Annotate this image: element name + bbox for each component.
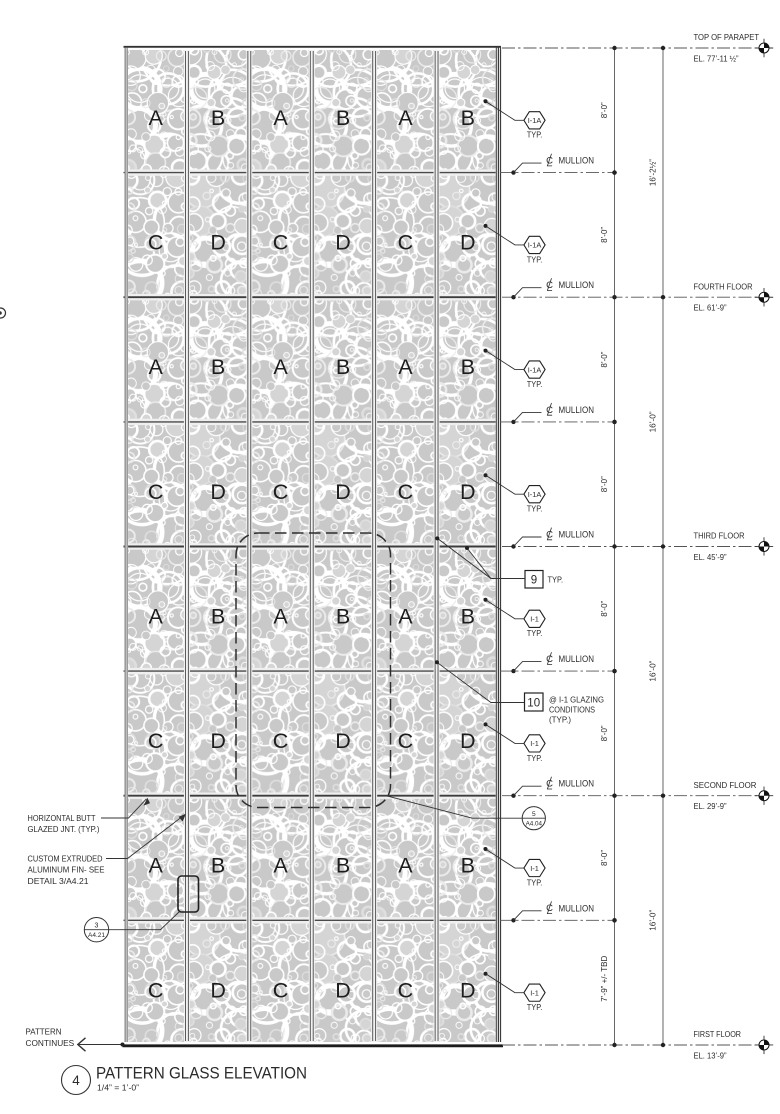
svg-text:16’-0”: 16’-0” <box>648 660 658 681</box>
svg-text:PATTERN: PATTERN <box>26 1027 62 1037</box>
svg-text:B: B <box>211 355 225 379</box>
svg-text:A4.04: A4.04 <box>526 821 543 828</box>
svg-text:C: C <box>398 231 414 255</box>
svg-text:C: C <box>398 978 414 1002</box>
svg-text:TYP.: TYP. <box>527 878 543 887</box>
svg-text:D: D <box>210 978 226 1002</box>
svg-text:EL. 61’-9”: EL. 61’-9” <box>694 303 727 313</box>
svg-text:16’-2½”: 16’-2½” <box>648 159 658 186</box>
svg-text:CONDITIONS: CONDITIONS <box>549 704 595 714</box>
svg-text:D: D <box>460 231 476 255</box>
svg-text:C: C <box>546 156 553 167</box>
svg-text:9: 9 <box>531 575 537 587</box>
svg-text:A: A <box>398 854 413 878</box>
svg-text:C: C <box>148 231 164 255</box>
svg-text:A: A <box>149 605 164 629</box>
svg-text:TYP.: TYP. <box>527 754 543 763</box>
svg-text:B: B <box>211 605 225 629</box>
svg-text:EL. 45’-9”: EL. 45’-9” <box>694 552 727 562</box>
svg-text:D: D <box>460 978 476 1002</box>
svg-text:FOURTH FLOOR: FOURTH FLOOR <box>694 281 753 291</box>
svg-text:D: D <box>335 480 351 504</box>
svg-text:C: C <box>546 779 553 790</box>
svg-text:D: D <box>210 480 226 504</box>
svg-text:C: C <box>148 480 164 504</box>
svg-text:I-1A: I-1A <box>528 365 542 374</box>
svg-text:I-1: I-1 <box>530 989 539 998</box>
svg-text:A: A <box>273 854 288 878</box>
svg-text:TYP.: TYP. <box>527 505 543 514</box>
svg-text:(TYP.): (TYP.) <box>549 714 571 724</box>
svg-text:EL. 77’-11 ½”: EL. 77’-11 ½” <box>694 53 739 63</box>
svg-text:I-1A: I-1A <box>528 241 542 250</box>
svg-text:C: C <box>546 405 553 416</box>
svg-text:8’-0”: 8’-0” <box>599 227 609 243</box>
svg-text:C: C <box>398 480 414 504</box>
svg-text:D: D <box>210 729 226 753</box>
svg-text:CUSTOM EXTRUDED: CUSTOM EXTRUDED <box>28 853 103 863</box>
svg-text:MULLION: MULLION <box>559 530 595 540</box>
svg-text:10: 10 <box>527 698 540 710</box>
svg-text:B: B <box>336 854 350 878</box>
svg-text:A: A <box>398 605 413 629</box>
svg-text:C: C <box>273 729 289 753</box>
svg-text:5: 5 <box>532 811 536 818</box>
svg-text:D: D <box>460 729 476 753</box>
svg-text:A4.21: A4.21 <box>88 932 105 939</box>
svg-text:B: B <box>461 355 475 379</box>
svg-text:I-1: I-1 <box>530 864 539 873</box>
svg-text:I-1: I-1 <box>530 739 539 748</box>
svg-text:TYP.: TYP. <box>548 576 564 585</box>
svg-text:DETAIL 3/A4.21: DETAIL 3/A4.21 <box>28 876 89 886</box>
svg-text:@ I-1 GLAZING: @ I-1 GLAZING <box>549 694 604 704</box>
svg-text:MULLION: MULLION <box>559 280 595 290</box>
svg-text:I-1: I-1 <box>530 615 539 624</box>
svg-text:I-1A: I-1A <box>528 490 542 499</box>
svg-text:D: D <box>335 231 351 255</box>
svg-text:8’-0”: 8’-0” <box>599 476 609 492</box>
svg-text:8’-0”: 8’-0” <box>599 601 609 617</box>
svg-text:GLAZED JNT. (TYP.): GLAZED JNT. (TYP.) <box>28 824 100 834</box>
svg-text:8’-0”: 8’-0” <box>599 850 609 866</box>
svg-text:C: C <box>148 729 164 753</box>
svg-text:TOP OF PARAPET: TOP OF PARAPET <box>694 32 760 42</box>
svg-text:MULLION: MULLION <box>559 903 595 913</box>
svg-text:A: A <box>149 854 164 878</box>
svg-text:TYP.: TYP. <box>527 131 543 140</box>
svg-text:8’-0”: 8’-0” <box>599 725 609 741</box>
svg-text:C: C <box>148 978 164 1002</box>
svg-text:ALUMINUM FIN- SEE: ALUMINUM FIN- SEE <box>28 865 105 875</box>
svg-text:A: A <box>149 355 164 379</box>
svg-text:D: D <box>335 729 351 753</box>
svg-text:TYP.: TYP. <box>527 1003 543 1012</box>
svg-text:4: 4 <box>72 1073 80 1088</box>
svg-text:B: B <box>211 106 225 130</box>
svg-text:EL. 13’-9”: EL. 13’-9” <box>694 1050 727 1060</box>
svg-text:C: C <box>273 480 289 504</box>
svg-text:C: C <box>273 231 289 255</box>
svg-text:D: D <box>210 231 226 255</box>
svg-text:A: A <box>398 355 413 379</box>
svg-text:EL. 29’-9”: EL. 29’-9” <box>694 801 727 811</box>
svg-text:C: C <box>546 654 553 665</box>
svg-text:MULLION: MULLION <box>559 654 595 664</box>
svg-text:PATTERN GLASS ELEVATION: PATTERN GLASS ELEVATION <box>96 1064 307 1083</box>
svg-text:16’-0”: 16’-0” <box>648 910 658 931</box>
svg-text:MULLION: MULLION <box>559 779 595 789</box>
svg-text:D: D <box>335 978 351 1002</box>
svg-text:B: B <box>336 355 350 379</box>
svg-text:A: A <box>273 605 288 629</box>
svg-text:A: A <box>273 355 288 379</box>
svg-text:B: B <box>461 605 475 629</box>
svg-text:A: A <box>398 106 413 130</box>
svg-text:B: B <box>211 854 225 878</box>
svg-text:7’-9” +/- TBD: 7’-9” +/- TBD <box>599 956 609 1002</box>
svg-text:3: 3 <box>95 923 99 930</box>
svg-text:HORIZONTAL BUTT: HORIZONTAL BUTT <box>28 813 96 823</box>
svg-text:16’-0”: 16’-0” <box>648 411 658 432</box>
svg-text:1/4” = 1’-0”: 1/4” = 1’-0” <box>97 1083 139 1092</box>
svg-text:MULLION: MULLION <box>559 405 595 415</box>
svg-text:CONTINUES: CONTINUES <box>26 1038 75 1048</box>
svg-text:A: A <box>273 106 288 130</box>
svg-text:B: B <box>461 106 475 130</box>
svg-text:MULLION: MULLION <box>559 156 595 166</box>
svg-text:B: B <box>461 854 475 878</box>
svg-text:THIRD FLOOR: THIRD FLOOR <box>694 531 745 541</box>
svg-text:C: C <box>546 903 553 914</box>
svg-text:C: C <box>273 978 289 1002</box>
svg-text:C: C <box>398 729 414 753</box>
svg-text:A: A <box>149 106 164 130</box>
svg-text:TYP.: TYP. <box>527 629 543 638</box>
svg-text:I-1A: I-1A <box>528 116 542 125</box>
svg-text:D: D <box>460 480 476 504</box>
svg-text:SECOND FLOOR: SECOND FLOOR <box>694 780 757 790</box>
svg-text:TYP.: TYP. <box>527 255 543 264</box>
svg-text:FIRST FLOOR: FIRST FLOOR <box>694 1029 742 1039</box>
svg-text:C: C <box>546 529 553 540</box>
svg-text:B: B <box>336 106 350 130</box>
svg-text:8’-0”: 8’-0” <box>599 351 609 367</box>
svg-text:B: B <box>336 605 350 629</box>
svg-text:C: C <box>546 280 553 291</box>
svg-text:TYP.: TYP. <box>527 380 543 389</box>
svg-text:8’-0”: 8’-0” <box>599 102 609 118</box>
